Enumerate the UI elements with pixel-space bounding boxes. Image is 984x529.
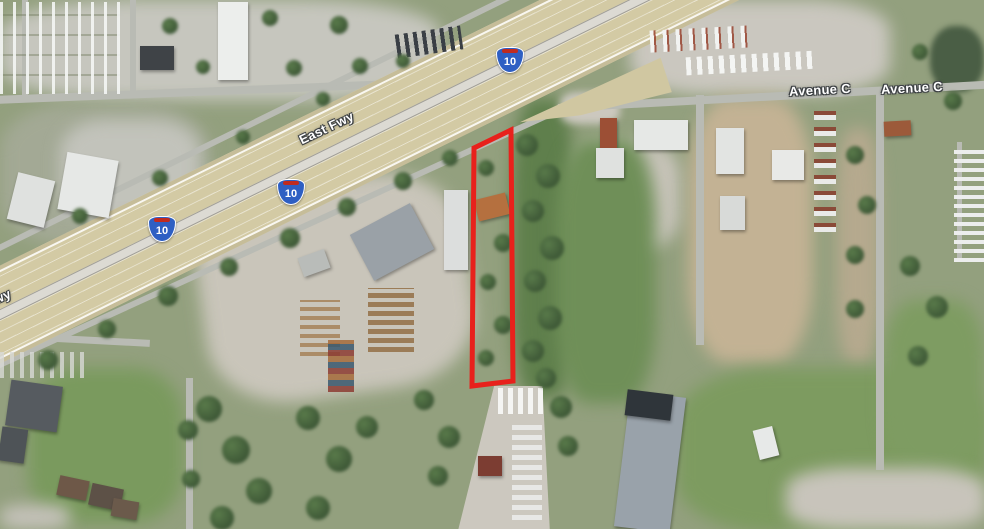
tree	[442, 150, 458, 166]
tree	[538, 306, 562, 330]
truck-row	[498, 388, 544, 414]
building	[140, 46, 174, 70]
tree	[846, 246, 864, 264]
trailer-column	[512, 420, 542, 520]
interstate-10-shield: 10	[148, 216, 176, 242]
terrain-patch	[786, 468, 984, 529]
tree	[280, 228, 300, 248]
tree	[220, 258, 238, 276]
tree	[516, 134, 538, 156]
satellite-map[interactable]: 10 10 10 East Fwy wy Avenue C Avenue C	[0, 0, 984, 529]
tree	[846, 146, 864, 164]
building	[884, 120, 912, 136]
terrain-patch	[688, 98, 813, 363]
interstate-10-shield: 10	[496, 47, 524, 73]
road-segment	[186, 378, 193, 529]
tree	[524, 270, 546, 292]
tree	[158, 286, 178, 306]
lumber-rows	[368, 288, 414, 352]
tree	[330, 16, 348, 34]
building	[634, 120, 688, 150]
shield-route-number: 10	[277, 179, 305, 205]
tree	[926, 296, 948, 318]
building	[5, 380, 63, 433]
tree	[908, 346, 928, 366]
building	[600, 118, 617, 148]
tree	[286, 60, 302, 76]
tree	[210, 506, 234, 529]
building	[625, 389, 674, 420]
tree	[306, 496, 330, 520]
tree	[236, 130, 250, 144]
building	[57, 152, 118, 218]
tree	[98, 320, 116, 338]
tree	[858, 196, 876, 214]
tree	[846, 300, 864, 318]
tree	[182, 470, 200, 488]
tree	[338, 198, 356, 216]
tree	[478, 160, 494, 176]
tree	[428, 466, 448, 486]
building	[0, 426, 28, 463]
tree	[912, 44, 928, 60]
tree	[152, 170, 168, 186]
building	[716, 128, 744, 174]
trailer-park-rows	[0, 2, 120, 94]
building	[720, 196, 745, 230]
tree	[438, 426, 460, 448]
tree	[494, 234, 512, 252]
tree	[162, 18, 178, 34]
road-segment	[876, 90, 884, 470]
road-segment	[696, 95, 704, 345]
tree	[296, 406, 320, 430]
tree	[178, 420, 198, 440]
tree	[394, 172, 412, 190]
interstate-10-shield: 10	[277, 179, 305, 205]
tree	[522, 340, 544, 362]
tree	[38, 350, 58, 370]
terrain-patch	[0, 505, 70, 529]
parcel-building	[474, 192, 510, 221]
shield-route-number: 10	[496, 47, 524, 73]
tree	[196, 60, 210, 74]
tree	[558, 436, 578, 456]
tree	[356, 416, 378, 438]
tree	[550, 396, 572, 418]
tree	[262, 10, 278, 26]
tree	[900, 256, 920, 276]
tree	[536, 368, 556, 388]
building	[772, 150, 804, 180]
road-label-avenue-c: Avenue C	[881, 79, 944, 97]
tree	[494, 316, 512, 334]
terrain-patch	[884, 300, 984, 470]
shield-route-number: 10	[148, 216, 176, 242]
building	[478, 456, 502, 476]
building	[596, 148, 624, 178]
tree	[72, 208, 88, 224]
tree	[944, 92, 962, 110]
road-segment	[130, 0, 136, 96]
tree	[414, 390, 434, 410]
tree	[396, 54, 410, 68]
tree	[352, 58, 368, 74]
tree	[326, 446, 352, 472]
tree	[480, 274, 496, 290]
tree	[478, 350, 494, 366]
tree	[196, 396, 222, 422]
building	[444, 190, 468, 270]
tree	[540, 236, 564, 260]
tree	[222, 436, 250, 464]
building	[218, 2, 248, 80]
container-stack	[328, 340, 354, 392]
tree	[316, 92, 330, 106]
tree	[246, 478, 272, 504]
truck-column	[814, 106, 836, 232]
tree	[536, 164, 560, 188]
tree	[522, 200, 544, 222]
trailer-rows	[954, 146, 984, 262]
